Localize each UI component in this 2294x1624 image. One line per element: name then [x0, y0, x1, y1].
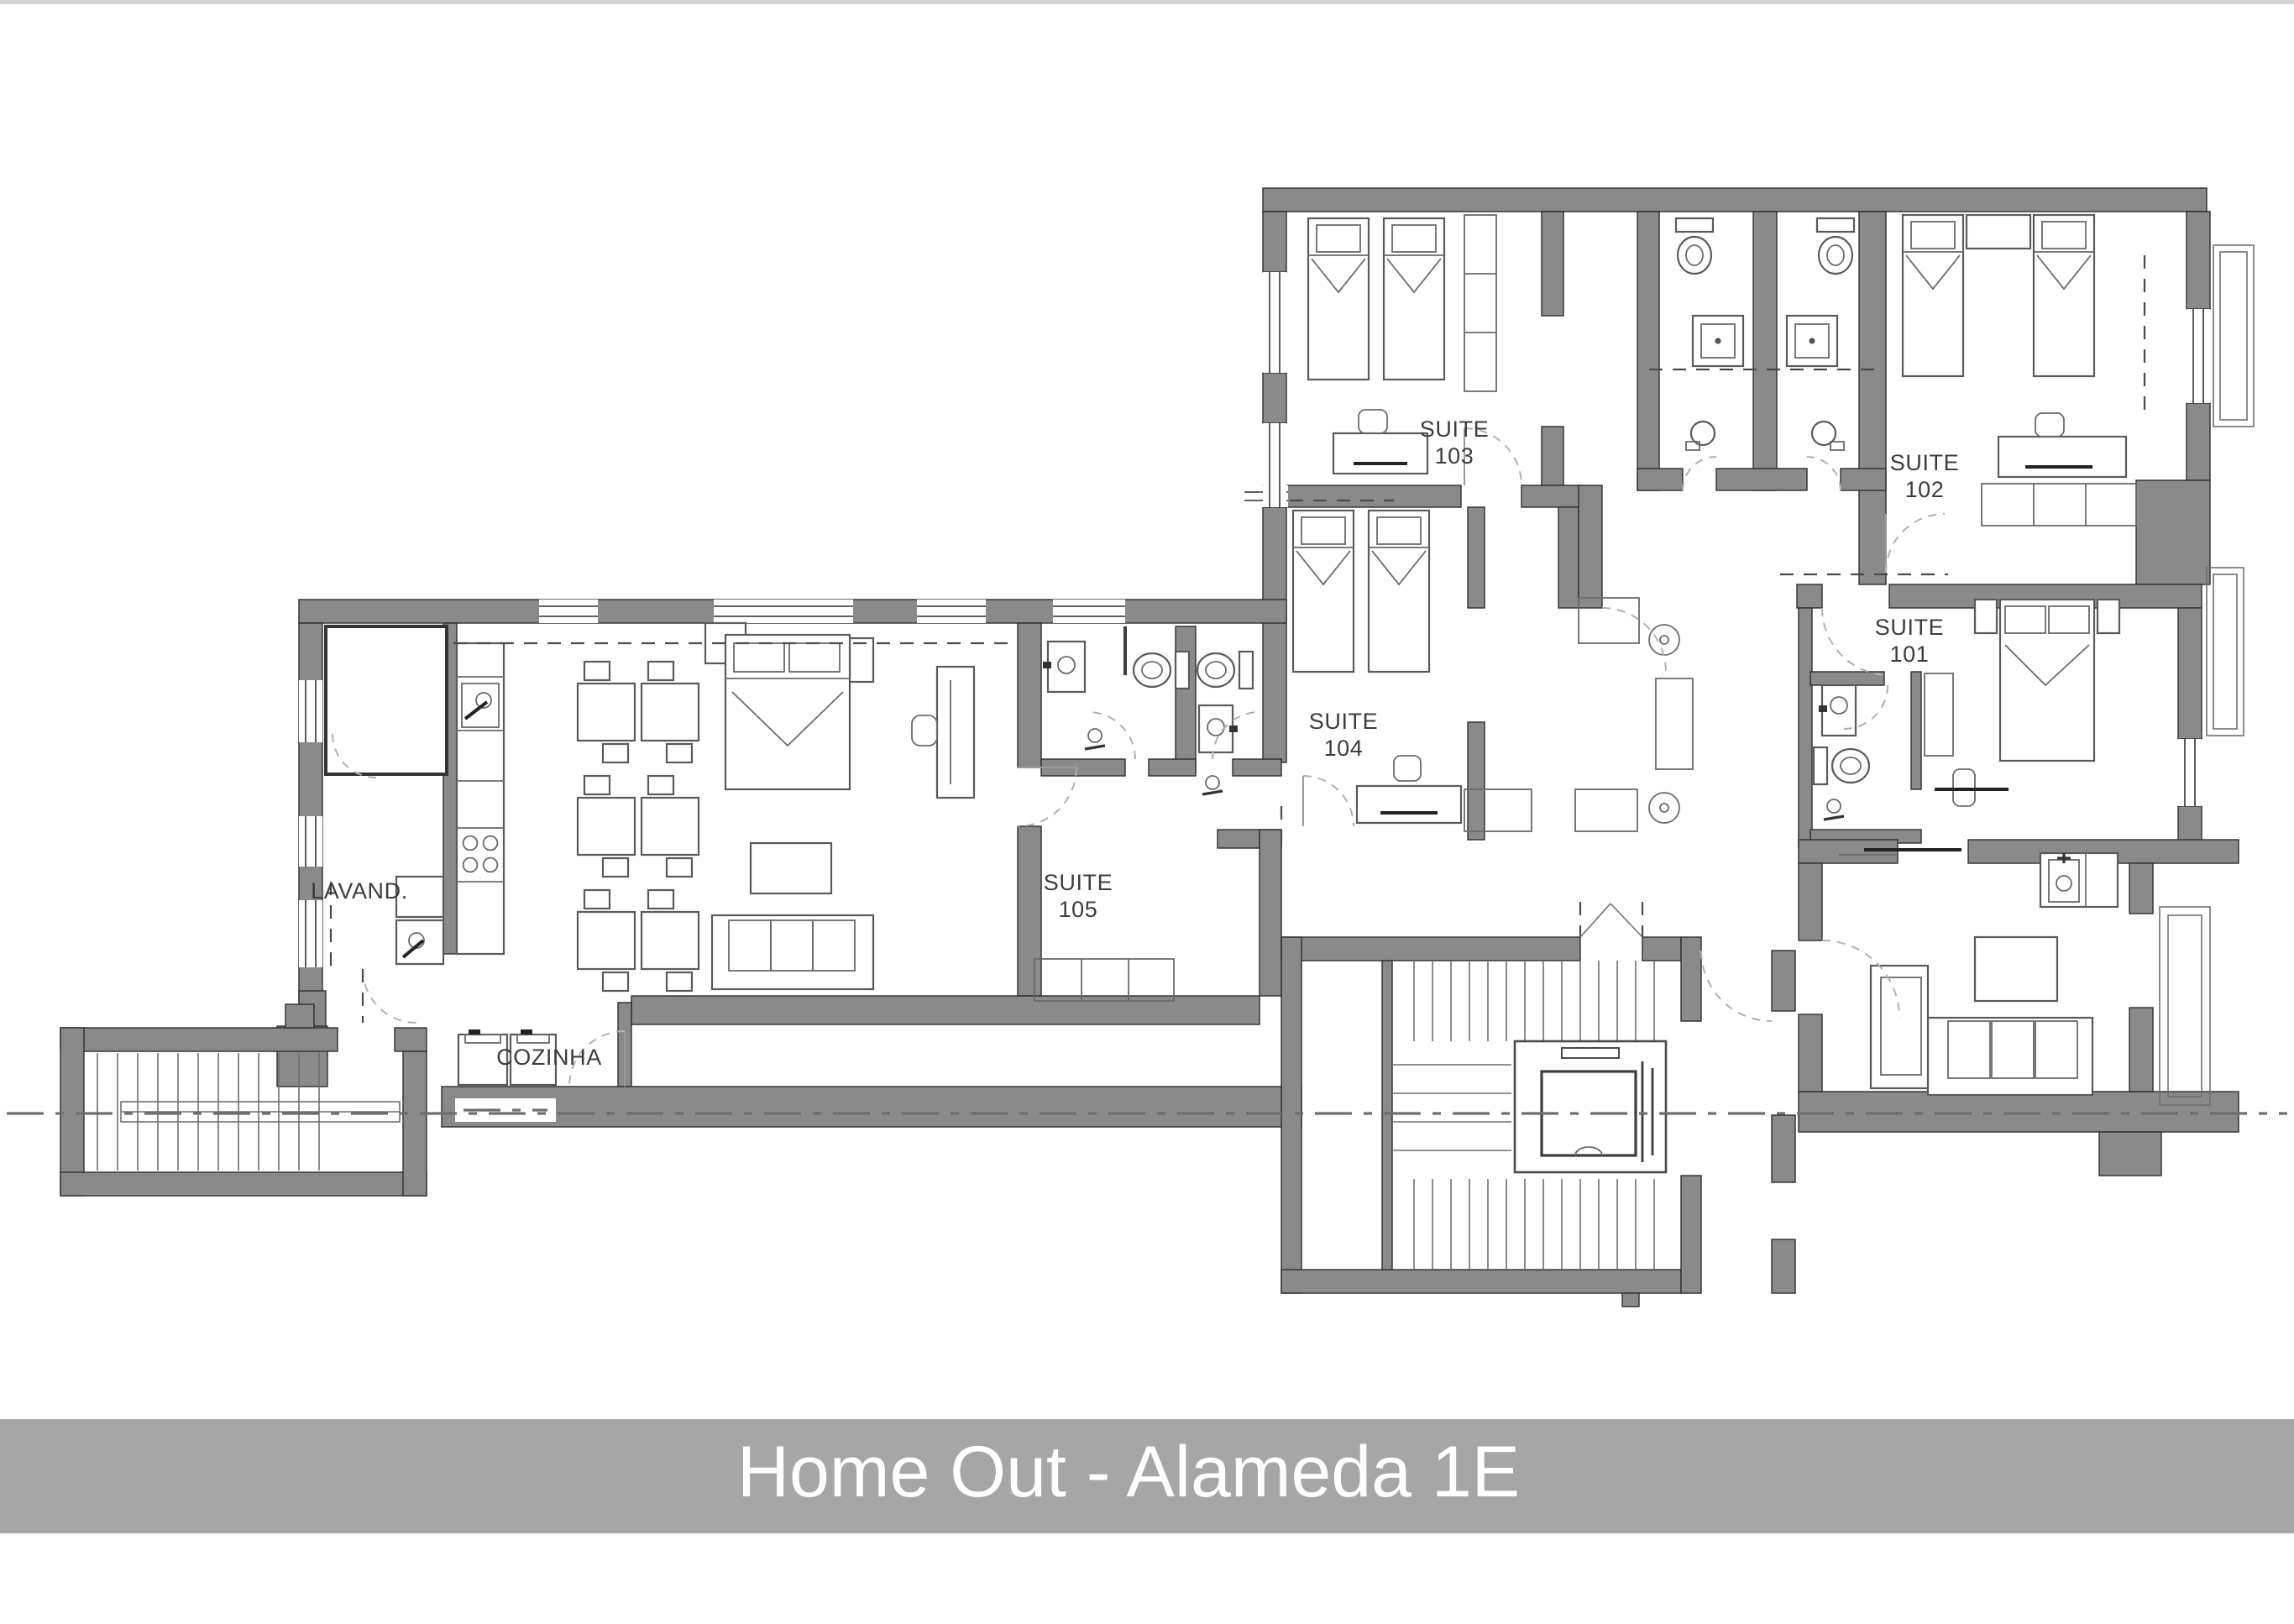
suite-105-label-line2: 105 — [1059, 897, 1098, 922]
suite-105-label-line1: SUITE — [1044, 870, 1113, 895]
window-suite103-2 — [1263, 423, 1286, 507]
floor-plan-page: SUITE 103 SUITE 102 SUITE 101 SUITE 104 … — [0, 0, 2294, 1624]
suite-105-bathroom-fixtures — [1043, 626, 1189, 749]
title-bar: Home Out - Alameda 1E — [0, 1419, 2294, 1533]
bathroom-103-fixtures — [1676, 218, 1743, 450]
balcony-door-suite102 — [2187, 309, 2210, 403]
kitchen-fixtures — [457, 643, 504, 954]
suite-104-furniture — [1293, 511, 1693, 831]
label-suite-101: SUITE 101 — [1875, 615, 1945, 667]
door-suite-102 — [1886, 514, 1945, 573]
suite-105-furniture — [1034, 959, 1174, 1001]
suite-101-label-line1: SUITE — [1875, 615, 1945, 640]
balcony-living — [2160, 907, 2210, 1105]
suite-102-label-line2: 102 — [1905, 477, 1945, 502]
elevator — [1515, 1041, 1666, 1172]
door-laundry — [363, 969, 416, 1023]
door-suite-104 — [1303, 776, 1354, 826]
room-labels: SUITE 103 SUITE 102 SUITE 101 SUITE 104 … — [311, 416, 1959, 1070]
door-swings — [333, 428, 1945, 1087]
window-left-wall-3 — [299, 900, 322, 967]
door-bath-103 — [1683, 457, 1716, 490]
window-suite103-1 — [1263, 272, 1286, 373]
suite-104-label-line1: SUITE — [1309, 709, 1379, 734]
door-hall — [1602, 608, 1666, 672]
window-top-wall-4 — [1053, 600, 1125, 623]
entrance-double-door — [1580, 902, 1642, 937]
suite-103-label-line2: 103 — [1435, 443, 1474, 469]
living-room-furniture — [1839, 850, 2118, 1095]
window-top-wall-2 — [714, 600, 853, 623]
suite-101-bathroom-fixtures — [1814, 685, 1869, 820]
dining-tables — [578, 662, 699, 991]
laundry-fixtures — [326, 626, 556, 1085]
label-suite-103: SUITE 103 — [1420, 416, 1490, 469]
suite-101-furniture — [1925, 600, 2119, 806]
balcony-suite102 — [2213, 245, 2254, 427]
label-suite-102: SUITE 102 — [1890, 450, 1960, 502]
suite-102-label-line1: SUITE — [1890, 450, 1960, 475]
suite-101-label-line2: 101 — [1890, 642, 1930, 667]
living-bedroom-furniture — [705, 623, 974, 989]
bathroom-102-fixtures — [1787, 218, 1854, 450]
kitchen-label: COZINHA — [496, 1045, 602, 1070]
label-suite-104: SUITE 104 — [1309, 709, 1379, 761]
suite-104-label-line2: 104 — [1324, 736, 1364, 761]
window-suite101 — [2178, 739, 2202, 806]
stairs-left-block — [97, 1053, 400, 1171]
plan-title: Home Out - Alameda 1E — [737, 1432, 1520, 1512]
door-lobby — [1701, 951, 1772, 1021]
suite-103-label-line1: SUITE — [1420, 416, 1490, 442]
balcony-suite101 — [2207, 568, 2244, 736]
window-top-wall-1 — [539, 600, 598, 623]
door-bath-105 — [1088, 712, 1135, 759]
top-hairline — [0, 0, 2294, 4]
window-top-wall-3 — [917, 600, 986, 623]
floor-plan-drawing: SUITE 103 SUITE 102 SUITE 101 SUITE 104 … — [0, 0, 2294, 1624]
laundry-label: LAVAND. — [311, 878, 408, 904]
door-bath-102 — [1807, 457, 1841, 490]
window-left-wall-1 — [299, 680, 322, 742]
window-left-wall-2 — [299, 816, 322, 867]
label-suite-105: SUITE 105 — [1044, 870, 1113, 922]
